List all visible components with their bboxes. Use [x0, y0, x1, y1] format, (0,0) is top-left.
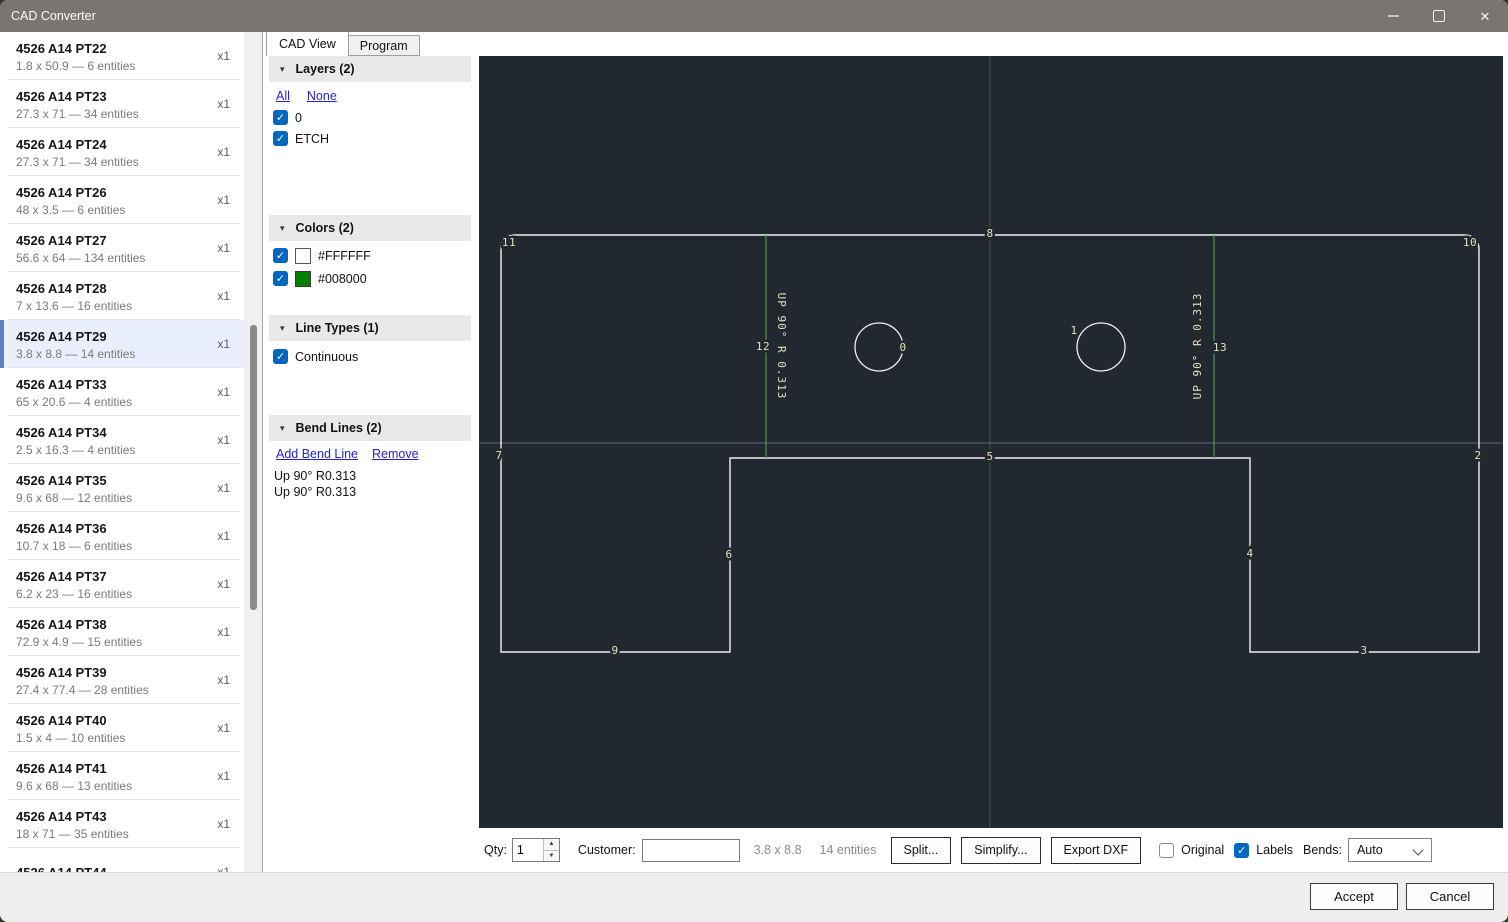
list-item[interactable]: 4526 A14 PT24 27.3 x 71 — 34 entities x1: [0, 128, 244, 176]
part-subtitle: 1.8 x 50.9 — 6 entities: [16, 58, 211, 74]
bend-line-entry[interactable]: Up 90° R0.313: [274, 469, 479, 485]
list-item[interactable]: 4526 A14 PT40 1.5 x 4 — 10 entities x1: [0, 704, 244, 752]
part-name: 4526 A14 PT40: [16, 712, 211, 730]
part-subtitle: 3.8 x 8.8 — 14 entities: [16, 346, 211, 362]
color-white-swatch: [295, 248, 311, 264]
tab-program[interactable]: Program: [349, 35, 420, 56]
colors-section: ▾ Colors (2) ✓ #FFFFFF ✓ #008000: [263, 215, 479, 289]
bend-2-annotation: UP 90° R 0.313: [1191, 293, 1204, 400]
part-qty: x1: [217, 673, 230, 687]
part-subtitle: 1.5 x 4 — 10 entities: [16, 730, 211, 746]
main-region: 4526 A14 PT22 1.8 x 50.9 — 6 entities x1…: [0, 32, 1508, 872]
list-item[interactable]: 4526 A14 PT26 48 x 3.5 — 6 entities x1: [0, 176, 244, 224]
part-subtitle: 72.9 x 4.9 — 15 entities: [16, 634, 211, 650]
part-name: 4526 A14 PT26: [16, 184, 211, 202]
tab-strip: CAD View Program: [263, 32, 1508, 56]
spinner-up-icon: ▲: [548, 841, 554, 847]
part-name: 4526 A14 PT36: [16, 520, 211, 538]
part-qty: x1: [217, 865, 230, 872]
part-subtitle: 27.4 x 77.4 — 28 entities: [16, 682, 211, 698]
part-subtitle: 27.3 x 71 — 34 entities: [16, 106, 211, 122]
check-icon: ✓: [274, 350, 287, 363]
customer-input[interactable]: [642, 839, 740, 862]
qty-label: Qty:: [484, 843, 507, 857]
part-qty: x1: [217, 97, 230, 111]
accept-button[interactable]: Accept: [1310, 883, 1398, 910]
check-icon: ✓: [1235, 844, 1248, 857]
part-subtitle: 18 x 71 — 35 entities: [16, 826, 211, 842]
maximize-icon: [1433, 10, 1445, 22]
maximize-button[interactable]: [1416, 0, 1462, 32]
entity-label: 0: [899, 341, 906, 354]
line-types-section: ▾ Line Types (1) ✓ Continuous: [263, 315, 479, 367]
part-subtitle: 9.6 x 68 — 13 entities: [16, 778, 211, 794]
original-label: Original: [1181, 843, 1224, 857]
entity-label: 7: [495, 449, 502, 462]
bend-lines-title: Bend Lines (2): [296, 421, 382, 435]
list-item[interactable]: 4526 A14 PT23 27.3 x 71 — 34 entities x1: [0, 80, 244, 128]
entity-label: 11: [502, 236, 516, 249]
tab-area: CAD View Program ▾ Layers (2) All None: [262, 32, 1508, 872]
collapse-icon: ▾: [280, 64, 285, 75]
split-button[interactable]: Split...: [891, 837, 952, 864]
labels-checkbox[interactable]: ✓: [1234, 843, 1249, 858]
list-item[interactable]: 4526 A14 PT22 1.8 x 50.9 — 6 entities x1: [0, 32, 244, 80]
app-window: CAD Converter ✕ 4526 A14 PT22 1.8 x 50.9…: [0, 0, 1508, 922]
part-name: 4526 A14 PT39: [16, 664, 211, 682]
original-checkbox[interactable]: ✓: [1159, 843, 1174, 858]
layer-0-checkbox[interactable]: ✓: [273, 110, 288, 125]
colors-title: Colors (2): [296, 221, 354, 235]
customer-label: Customer:: [578, 843, 636, 857]
layer-etch-label: ETCH: [295, 132, 329, 146]
part-qty: x1: [217, 577, 230, 591]
bends-dropdown[interactable]: Auto: [1348, 838, 1432, 862]
part-qty: x1: [217, 769, 230, 783]
close-icon: ✕: [1480, 10, 1491, 23]
collapse-icon: ▾: [280, 223, 285, 234]
part-qty: x1: [217, 337, 230, 351]
check-icon: ✓: [274, 272, 287, 285]
title-bar: CAD Converter ✕: [0, 0, 1508, 32]
color-green-checkbox[interactable]: ✓: [273, 271, 288, 286]
qty-down-button[interactable]: ▼: [544, 851, 559, 862]
entity-label: 1: [1070, 324, 1077, 337]
part-qty: x1: [217, 433, 230, 447]
part-qty: x1: [217, 289, 230, 303]
add-bend-line-link[interactable]: Add Bend Line: [276, 447, 358, 461]
part-qty: x1: [217, 385, 230, 399]
canvas-toolbar: Qty: ▲ ▼ Customer: 3.8 x 8.8 14 entities…: [479, 828, 1508, 872]
bend-lines-header[interactable]: ▾ Bend Lines (2): [269, 415, 471, 441]
part-name: 4526 A14 PT37: [16, 568, 211, 586]
bends-label: Bends:: [1303, 843, 1342, 857]
part-subtitle: 65 x 20.6 — 4 entities: [16, 394, 211, 410]
entity-label: 6: [725, 548, 732, 561]
line-types-header[interactable]: ▾ Line Types (1): [269, 315, 471, 341]
entity-label: 2: [1474, 449, 1481, 462]
layers-section: ▾ Layers (2) All None ✓ 0 ✓: [263, 56, 479, 149]
color-white-label: #FFFFFF: [318, 249, 371, 263]
sidebar-scrollbar[interactable]: [244, 32, 262, 872]
list-item[interactable]: 4526 A14 PT33 65 x 20.6 — 4 entities x1: [0, 368, 244, 416]
entity-label: 10: [1463, 236, 1477, 249]
part-name: 4526 A14 PT27: [16, 232, 211, 250]
layers-none-link[interactable]: None: [307, 89, 337, 103]
layer-0-label: 0: [295, 111, 302, 125]
layers-title: Layers (2): [296, 62, 355, 76]
minimize-icon: [1388, 15, 1399, 17]
part-subtitle: 7 x 13.6 — 16 entities: [16, 298, 211, 314]
color-white-checkbox[interactable]: ✓: [273, 248, 288, 263]
list-item[interactable]: 4526 A14 PT34 2.5 x 16.3 — 4 entities x1: [0, 416, 244, 464]
spinner-down-icon: ▼: [548, 853, 554, 859]
part-name: 4526 A14 PT38: [16, 616, 211, 634]
check-icon: ✓: [274, 249, 287, 262]
entity-label: 8: [986, 227, 993, 240]
window-title: CAD Converter: [11, 9, 96, 23]
list-item[interactable]: 4526 A14 PT27 56.6 x 64 — 134 entities x…: [0, 224, 244, 272]
list-item[interactable]: 4526 A14 PT28 7 x 13.6 — 16 entities x1: [0, 272, 244, 320]
part-subtitle: 9.6 x 68 — 12 entities: [16, 490, 211, 506]
part-qty: x1: [217, 721, 230, 735]
entity-label: 9: [611, 644, 618, 657]
cad-view-page: ▾ Layers (2) All None ✓ 0 ✓: [263, 56, 1508, 872]
entity-label: 5: [986, 450, 993, 463]
part-qty: x1: [217, 49, 230, 63]
options-panel: ▾ Layers (2) All None ✓ 0 ✓: [263, 56, 479, 872]
remove-bend-line-link[interactable]: Remove: [372, 447, 419, 461]
list-item[interactable]: 4526 A14 PT43 18 x 71 — 35 entities x1: [0, 800, 244, 848]
part-name: 4526 A14 PT23: [16, 88, 211, 106]
bends-selected-value: Auto: [1357, 843, 1383, 857]
entity-count-text: 14 entities: [820, 843, 877, 857]
qty-input[interactable]: [513, 839, 543, 861]
check-icon: ✓: [274, 111, 287, 124]
close-button[interactable]: ✕: [1462, 0, 1508, 32]
check-icon: ✓: [274, 132, 287, 145]
cancel-button[interactable]: Cancel: [1406, 883, 1494, 910]
export-dxf-button[interactable]: Export DXF: [1051, 837, 1142, 864]
cad-canvas[interactable]: UP 90° R 0.313 UP 90° R 0.313 0 1 2 3 4 …: [479, 56, 1503, 828]
list-item[interactable]: 4526 A14 PT36 10.7 x 18 — 6 entities x1: [0, 512, 244, 560]
bend-line-entry[interactable]: Up 90° R0.313: [274, 485, 479, 501]
continuous-label: Continuous: [295, 350, 358, 364]
part-name: 4526 A14 PT24: [16, 136, 211, 154]
quantity-stepper[interactable]: ▲ ▼: [512, 838, 560, 862]
list-item[interactable]: 4526 A14 PT29 3.8 x 8.8 — 14 entities x1: [0, 320, 244, 368]
bend-lines-section: ▾ Bend Lines (2) Add Bend Line Remove Up…: [263, 415, 479, 500]
part-qty: x1: [217, 481, 230, 495]
part-qty: x1: [217, 625, 230, 639]
part-subtitle: 48 x 3.5 — 6 entities: [16, 202, 211, 218]
minimize-button[interactable]: [1370, 0, 1416, 32]
layers-all-link[interactable]: All: [276, 89, 290, 103]
bend-1-annotation: UP 90° R 0.313: [775, 293, 788, 400]
part-name: 4526 A14 PT28: [16, 280, 211, 298]
tab-cad-view[interactable]: CAD View: [266, 32, 349, 56]
part-name: 4526 A14 PT43: [16, 808, 211, 826]
simplify-button[interactable]: Simplify...: [961, 837, 1040, 864]
list-item[interactable]: 4526 A14 PT41 9.6 x 68 — 13 entities x1: [0, 752, 244, 800]
entity-label: 13: [1213, 341, 1227, 354]
part-name: 4526 A14 PT29: [16, 328, 211, 346]
list-item[interactable]: 4526 A14 PT44 x1: [0, 848, 244, 872]
part-subtitle: 2.5 x 16.3 — 4 entities: [16, 442, 211, 458]
part-name: 4526 A14 PT44: [16, 864, 211, 873]
part-name: 4526 A14 PT35: [16, 472, 211, 490]
part-name: 4526 A14 PT34: [16, 424, 211, 442]
canvas-background: [479, 56, 1503, 828]
continuous-checkbox[interactable]: ✓: [273, 349, 288, 364]
part-qty: x1: [217, 145, 230, 159]
list-item[interactable]: 4526 A14 PT38 72.9 x 4.9 — 15 entities x…: [0, 608, 244, 656]
labels-label: Labels: [1256, 843, 1293, 857]
part-qty: x1: [217, 241, 230, 255]
part-name: 4526 A14 PT33: [16, 376, 211, 394]
layers-header[interactable]: ▾ Layers (2): [269, 56, 471, 82]
cad-canvas-container: UP 90° R 0.313 UP 90° R 0.313 0 1 2 3 4 …: [479, 56, 1503, 828]
part-name: 4526 A14 PT22: [16, 40, 211, 58]
collapse-icon: ▾: [280, 323, 285, 334]
qty-up-button[interactable]: ▲: [544, 839, 559, 851]
part-list: 4526 A14 PT22 1.8 x 50.9 — 6 entities x1…: [0, 32, 244, 872]
collapse-icon: ▾: [280, 423, 285, 434]
part-subtitle: 56.6 x 64 — 134 entities: [16, 250, 211, 266]
part-subtitle: 27.3 x 71 — 34 entities: [16, 154, 211, 170]
entity-label: 12: [756, 340, 770, 353]
part-size-text: 3.8 x 8.8: [754, 843, 802, 857]
part-qty: x1: [217, 529, 230, 543]
entity-label: 4: [1246, 547, 1253, 560]
part-subtitle: 6.2 x 23 — 16 entities: [16, 586, 211, 602]
list-item[interactable]: 4526 A14 PT35 9.6 x 68 — 12 entities x1: [0, 464, 244, 512]
list-item[interactable]: 4526 A14 PT37 6.2 x 23 — 16 entities x1: [0, 560, 244, 608]
part-subtitle: 10.7 x 18 — 6 entities: [16, 538, 211, 554]
list-item[interactable]: 4526 A14 PT39 27.4 x 77.4 — 28 entities …: [0, 656, 244, 704]
line-types-title: Line Types (1): [296, 321, 379, 335]
scrollbar-thumb[interactable]: [250, 325, 257, 610]
layer-etch-checkbox[interactable]: ✓: [273, 131, 288, 146]
colors-header[interactable]: ▾ Colors (2): [269, 215, 471, 241]
color-green-swatch: [295, 271, 311, 287]
part-name: 4526 A14 PT41: [16, 760, 211, 778]
dialog-footer: Accept Cancel: [0, 872, 1508, 922]
color-green-label: #008000: [318, 272, 367, 286]
part-qty: x1: [217, 193, 230, 207]
entity-label: 3: [1360, 644, 1367, 657]
chevron-down-icon: [1412, 844, 1423, 855]
part-qty: x1: [217, 817, 230, 831]
